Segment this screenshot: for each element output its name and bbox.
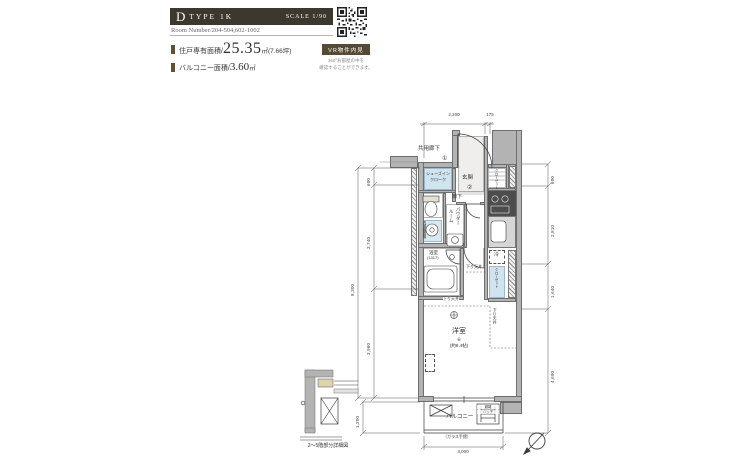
party-wall-hatch <box>411 168 417 296</box>
header-divider <box>170 35 333 36</box>
room-bath <box>420 248 460 296</box>
pipe-shaft-top <box>509 166 516 188</box>
inset-caption: 2〜5階部分詳細図 <box>292 444 364 450</box>
wall-powder-hall <box>464 204 467 248</box>
wall-bath-right <box>460 248 464 296</box>
vr-badge: VR物件内見 <box>322 44 370 55</box>
label-washer: 洗濯機置場 <box>423 221 427 239</box>
note-marker-1: ① <box>442 155 447 162</box>
wall-right <box>516 130 522 402</box>
label-hall: 廊下 <box>452 195 462 201</box>
dim-right-2810: 2,810 <box>550 213 555 237</box>
label-closet-top: クローゼット <box>494 169 498 185</box>
wall-kitchen-left <box>484 136 488 300</box>
vr-note-line2: 確認することができます。 <box>312 65 380 72</box>
label-down-ceiling-1: 下り天井 <box>466 265 482 270</box>
wall-entry-top-a <box>452 130 460 136</box>
unit-area-unit: ㎡(7.66坪) <box>261 45 291 55</box>
dim-bottom-3000: 3,000 <box>440 449 486 454</box>
wall-left <box>418 162 424 402</box>
label-common-corridor: 共用廊下 <box>418 146 440 152</box>
dim-balcony-1200: 1,200 <box>355 406 360 428</box>
label-powder-1: パウダー <box>456 207 461 225</box>
type-name: TYPE 1K <box>189 12 233 21</box>
powder-door-arc <box>466 204 480 218</box>
balcony-area-label: バルコニー面積/ <box>179 63 230 73</box>
wall-balcony-right-stub <box>500 402 522 414</box>
label-glass-rail: （ガラス手摺） <box>443 435 471 440</box>
label-balcony: バルコニー <box>446 414 473 420</box>
note-marker-2: ② <box>467 184 472 191</box>
balcony-area-unit: ㎡ <box>249 62 256 72</box>
qr-code <box>337 7 367 37</box>
label-main-room: 洋室 <box>438 328 480 336</box>
type-letter: D <box>176 9 186 25</box>
bullet-icon <box>171 63 175 72</box>
wall-bottom-a <box>418 396 434 402</box>
wall-under-closet-blue <box>488 298 516 302</box>
room-wc <box>421 193 443 218</box>
wall-under-sic <box>418 190 456 193</box>
label-sic-1: シューズイン <box>424 172 452 177</box>
dim-right-4690: 4,690 <box>550 359 555 383</box>
kitchen-stove <box>488 191 516 216</box>
label-closet-blue: クローゼット <box>494 268 498 292</box>
label-fridge: 冷 <box>494 253 499 259</box>
label-main-room-note: ⑥ <box>438 337 480 342</box>
unit-area-value: 25.35 <box>223 40 262 58</box>
dim-left-3740: 3,740 <box>366 225 371 249</box>
ac-unit-space <box>425 354 435 372</box>
balcony-area-value: 3.60 <box>230 61 249 73</box>
wall-corridor-stub <box>390 156 418 168</box>
label-down-ceiling-3: 下り天井 <box>492 308 497 324</box>
label-main-room-size: (約8.4帖) <box>438 343 480 348</box>
dim-top-175: 175 <box>480 112 500 117</box>
kitchen-counter <box>488 216 516 248</box>
type-title-bar: D TYPE 1K SCALE 1/90 <box>170 8 333 25</box>
room-number: Room Number/204-504,602-1002 <box>171 27 260 34</box>
balcony-area-line: バルコニー面積/ 3.60 ㎡ <box>171 61 256 73</box>
label-sic-2: クローク <box>424 178 452 183</box>
inset-detail-diagram <box>300 370 358 440</box>
wall-wc-powder <box>443 193 446 248</box>
dim-right-800: 800 <box>550 166 555 184</box>
dim-left-3960: 3,960 <box>366 331 371 355</box>
unit-area-line: 住戸専有面積/ 25.35 ㎡(7.66坪) <box>171 40 291 58</box>
floorplan-page: D TYPE 1K SCALE 1/90 Room Number/204-504… <box>0 0 730 470</box>
label-bath-size: (1317) <box>427 256 439 261</box>
bullet-icon <box>171 45 175 54</box>
compass-icon <box>524 433 545 454</box>
unit-area-label: 住戸専有面積/ <box>179 46 223 56</box>
pipe-shaft-mid <box>508 250 516 298</box>
label-entrance: 玄関 <box>462 175 473 181</box>
label-down-ceiling-2: 下り天井 <box>443 297 459 302</box>
wall-under-closet-top <box>488 188 516 191</box>
hall-to-room <box>464 248 484 302</box>
vr-note-line1: 360°お部屋の中を <box>312 58 380 65</box>
wall-bath-top <box>418 243 464 248</box>
dim-top-2200: 2,200 <box>436 112 472 117</box>
dim-left-total-8300: 8,300 <box>350 270 355 296</box>
label-escape-hatch-2: ハッチ <box>477 410 499 414</box>
dim-left-600: 600 <box>366 166 371 186</box>
label-powder-2: ルーム <box>449 209 454 223</box>
vr-note: 360°お部屋の中を 確認することができます。 <box>312 58 380 72</box>
dim-right-1640: 1,640 <box>550 274 555 298</box>
label-escape-hatch-1: 避難 <box>477 405 499 409</box>
scale-label: SCALE 1/90 <box>286 14 327 20</box>
